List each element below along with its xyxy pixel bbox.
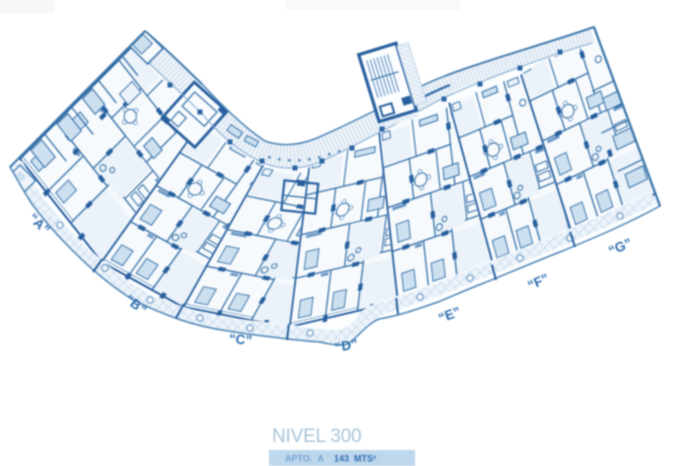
svg-text:APTO. A: APTO. A xyxy=(285,454,324,464)
svg-text:NIVEL 300: NIVEL 300 xyxy=(272,426,361,447)
svg-text:“C”: “C” xyxy=(228,331,253,348)
svg-text:143 MTS²: 143 MTS² xyxy=(334,454,376,464)
